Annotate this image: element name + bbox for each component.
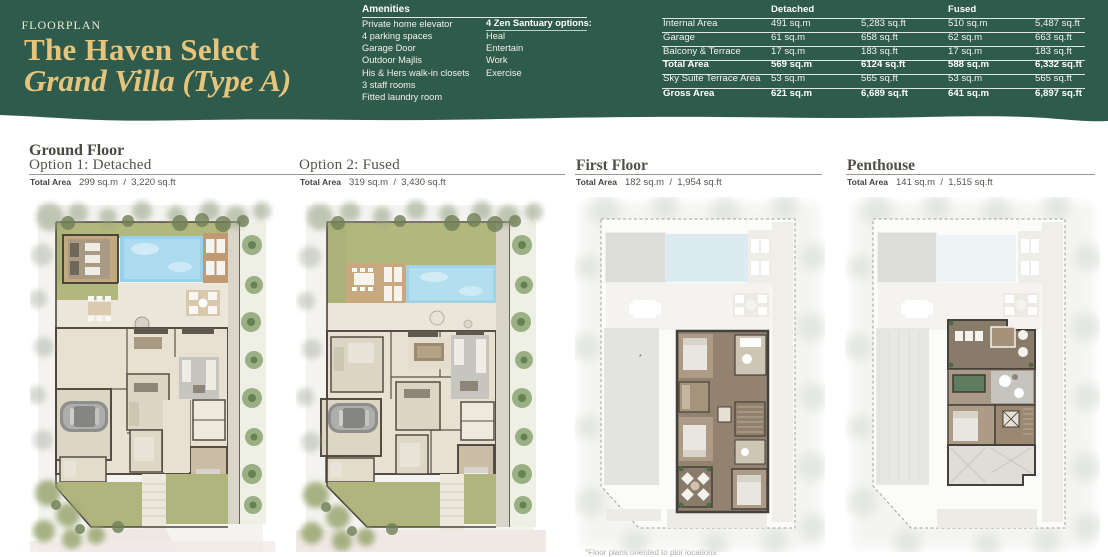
svg-text:*: *: [639, 354, 642, 361]
